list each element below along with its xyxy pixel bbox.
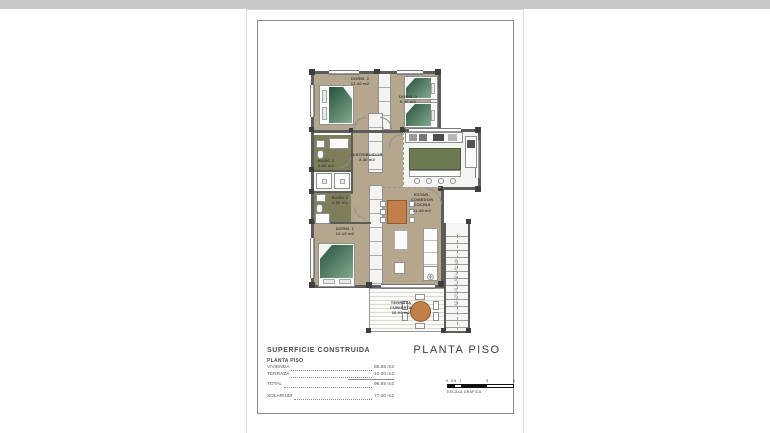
stool-icon bbox=[426, 178, 432, 184]
row-value: 10.00 m2 bbox=[374, 372, 394, 379]
wall-pier bbox=[349, 128, 353, 132]
wall-pier bbox=[374, 69, 380, 74]
hall-floor bbox=[368, 173, 384, 185]
room-label-estar-comedor: ESTAR-COMEDORCOCINA21.40 m2 bbox=[403, 192, 441, 213]
wall-pier bbox=[366, 282, 372, 288]
row-label: VIVIENDA bbox=[267, 365, 289, 372]
window bbox=[397, 70, 423, 75]
chair-icon bbox=[433, 312, 439, 321]
kitchen-appliance-icon bbox=[419, 134, 427, 141]
dashed-line bbox=[403, 132, 404, 185]
dashed-line bbox=[383, 187, 441, 188]
kitchen-sink-icon bbox=[409, 134, 417, 141]
stool-icon bbox=[438, 178, 444, 184]
terrace-sliding-door bbox=[381, 284, 435, 289]
wall-pier bbox=[466, 328, 471, 333]
sink-icon bbox=[316, 194, 326, 202]
sum-line bbox=[348, 379, 394, 380]
double-bed-icon bbox=[318, 243, 355, 287]
tv-unit-icon bbox=[394, 262, 405, 274]
side-table-icon: ⊕ bbox=[423, 266, 438, 281]
surface-table-subheading: PLANTA PISO bbox=[267, 358, 303, 364]
scale-bar-segments bbox=[447, 384, 514, 388]
row-value: 86.85 m2 bbox=[374, 365, 394, 372]
dotted-leader bbox=[291, 370, 372, 371]
wall-pier bbox=[441, 328, 446, 333]
oven-icon bbox=[467, 140, 475, 148]
row-label: TOTAL bbox=[267, 382, 282, 389]
chair-icon bbox=[415, 323, 425, 329]
shower-icon bbox=[334, 173, 350, 189]
chair-icon bbox=[433, 301, 439, 310]
scale-segment bbox=[487, 385, 513, 387]
screenshot-canvas: ACCESO A SOLARIUM ↑ bbox=[0, 0, 770, 433]
wall-pier bbox=[309, 219, 314, 224]
shower-icon bbox=[315, 213, 330, 224]
row-value: 96.85 m2 bbox=[374, 382, 394, 389]
stairs-up-arrow-icon: ↑ bbox=[456, 232, 458, 237]
window bbox=[310, 238, 315, 278]
stool-icon bbox=[450, 178, 456, 184]
rug-icon bbox=[394, 230, 408, 250]
wall-pier bbox=[309, 127, 314, 132]
wall-pier bbox=[366, 328, 371, 333]
top-gray-band bbox=[0, 0, 770, 9]
plan-title: PLANTA PISO bbox=[407, 344, 507, 356]
dotted-leader bbox=[294, 399, 372, 400]
room-label-dorm-1: DORM. 112.10 m2 bbox=[329, 226, 361, 236]
chair-icon bbox=[380, 201, 386, 207]
room-label-dorm-2: DORM. 213.40 m2 bbox=[343, 76, 377, 86]
stairs: ACCESO A SOLARIUM bbox=[446, 223, 468, 333]
stool-icon bbox=[414, 178, 420, 184]
dotted-leader bbox=[284, 387, 372, 388]
wall-pier bbox=[475, 186, 481, 192]
wall bbox=[438, 71, 441, 132]
wall-pier bbox=[466, 219, 471, 224]
hob-icon bbox=[433, 134, 444, 141]
crosshair-circle-icon: ⊕ bbox=[426, 272, 434, 283]
scale-segment bbox=[461, 385, 487, 387]
wall-pier bbox=[435, 69, 441, 75]
scale-tick-label: 3 bbox=[486, 379, 488, 383]
dotted-leader bbox=[291, 377, 372, 378]
scale-tick-label: 5 bbox=[513, 379, 515, 383]
wall-pier bbox=[438, 281, 444, 287]
table-row: VIVIENDA 86.85 m2 bbox=[267, 365, 394, 372]
wall-pier bbox=[309, 282, 315, 288]
sink-icon bbox=[316, 140, 325, 148]
table-row: TERRAZA 10.00 m2 bbox=[267, 372, 394, 379]
kitchen-appliance-icon bbox=[448, 134, 457, 141]
stairs-landing: ↑ bbox=[446, 223, 468, 235]
wall bbox=[468, 223, 470, 333]
row-label: TERRAZA bbox=[267, 372, 289, 379]
chair-icon bbox=[380, 209, 386, 215]
kitchen-island bbox=[409, 148, 461, 170]
scale-caption: ESCALA GRAFICA bbox=[447, 390, 481, 394]
room-label-bano-1: BAÑO 13.50 m2 bbox=[327, 195, 353, 205]
wall-pier bbox=[309, 69, 315, 75]
bathtub-icon bbox=[329, 138, 349, 149]
wall-pier bbox=[475, 127, 481, 133]
row-value: 77.00 m2 bbox=[374, 394, 394, 401]
chair-icon bbox=[380, 217, 386, 223]
surface-table: VIVIENDA 86.85 m2 TERRAZA 10.00 m2 TOTAL… bbox=[267, 365, 394, 401]
scale-tick-label: 0 bbox=[446, 379, 448, 383]
table-row: TOTAL 96.85 m2 bbox=[267, 382, 394, 389]
wall-pier bbox=[309, 189, 314, 194]
room-label-distribuidor: DISTRIBUIDOR3.40 m2 bbox=[350, 152, 384, 162]
window bbox=[310, 85, 315, 117]
scale-bar: 0 0.5 1 3 5 ESCALA GRAFICA bbox=[447, 379, 514, 399]
single-bed-icon bbox=[404, 102, 438, 128]
room-label-dorm-3: DORM. 39.00 m2 bbox=[391, 94, 425, 104]
row-label: SOLARIUM bbox=[267, 394, 292, 401]
window bbox=[329, 70, 359, 75]
shower-icon bbox=[316, 173, 332, 189]
stairs-direction-label: ACCESO A SOLARIUM bbox=[454, 259, 458, 306]
plan-sheet: ACCESO A SOLARIUM ↑ bbox=[246, 9, 524, 433]
wall bbox=[444, 223, 446, 333]
chair-icon bbox=[409, 217, 415, 223]
toilet-icon bbox=[316, 204, 323, 213]
wall bbox=[314, 191, 351, 193]
surface-table-heading: SUPERFICIE CONSTRUIDA bbox=[267, 347, 370, 354]
double-bed-icon bbox=[319, 85, 354, 125]
scale-tick-label: 1 bbox=[459, 379, 461, 383]
table-row: SOLARIUM 77.00 m2 bbox=[267, 394, 394, 401]
wall bbox=[314, 170, 351, 172]
scale-tick-label: 0.5 bbox=[451, 379, 456, 383]
room-label-bano-2: BAÑO 23.80 m2 bbox=[313, 158, 339, 168]
breakfast-bar bbox=[409, 170, 461, 177]
room-label-terraza: TERRAZACUBIERTA10.00 m2 bbox=[383, 300, 419, 316]
